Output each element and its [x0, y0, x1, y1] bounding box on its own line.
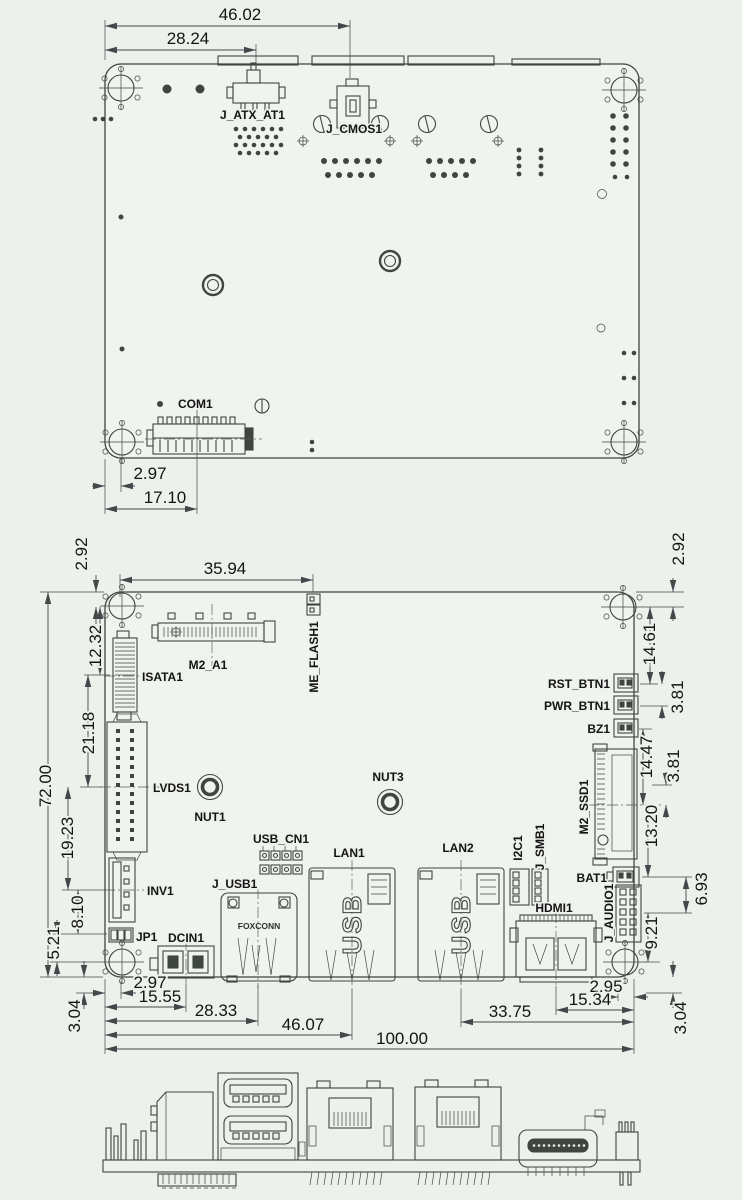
j-audio1-label: J_AUDIO1	[602, 883, 616, 942]
dim-46-02: 46.02	[219, 5, 262, 24]
i2c1-label: I2C1	[511, 835, 525, 861]
side-bottom-com-header	[158, 1174, 236, 1188]
dim-15-34: 15.34	[569, 990, 612, 1009]
hdmi1-label: HDMI1	[535, 901, 573, 915]
dim-28-33: 28.33	[195, 1001, 238, 1020]
lvds1-label: LVDS1	[153, 781, 191, 795]
com1-label: COM1	[178, 397, 213, 411]
dim-3-81-b: 3.81	[664, 749, 683, 782]
dcin1-label: DCIN1	[168, 931, 204, 945]
bat1-label: BAT1	[577, 871, 608, 885]
dim-3-81-a: 3.81	[668, 680, 687, 713]
dim-13-20: 13.20	[642, 805, 661, 848]
dim-19-23: 19.23	[58, 817, 77, 860]
pcb-dimension-drawing: J_ATX_AT1 J_CMOS1 COM1 46.02 28.24 2.97 …	[0, 0, 742, 1200]
dim-left-2-92: 2.92	[72, 537, 91, 570]
lan1-label: LAN1	[333, 846, 365, 860]
dim-33-75: 33.75	[489, 1002, 532, 1021]
foxconn-marking: FOXCONN	[238, 921, 281, 931]
dim-5-21: 5.21	[44, 926, 63, 959]
m2-ssd1-label: M2_SSD1	[577, 779, 591, 834]
bz1-label: BZ1	[587, 722, 610, 736]
isata1-label: ISATA1	[142, 670, 183, 684]
main-view: ISATA1 M2_A1 ME_FLASH1 LVDS1 NUT1 NUT3 I…	[36, 532, 711, 1054]
dim-6-93: 6.93	[692, 872, 711, 905]
lan2-label: LAN2	[442, 841, 474, 855]
dim-100-00: 100.00	[376, 1029, 428, 1048]
dim-14-61: 14.61	[640, 623, 659, 666]
dim-28-24: 28.24	[167, 29, 210, 48]
dim-14-47: 14.47	[637, 736, 656, 779]
side-left-pins	[106, 1124, 146, 1160]
lan1-usb-marking: USB	[337, 894, 367, 955]
side-bottom-pins	[310, 1167, 584, 1185]
side-view	[103, 1073, 640, 1188]
pwr-btn1-label: PWR_BTN1	[544, 699, 610, 713]
drawing-canvas: J_ATX_AT1 J_CMOS1 COM1 46.02 28.24 2.97 …	[0, 0, 742, 1200]
lan2-usb-marking: USB	[446, 894, 476, 955]
side-lan1	[307, 1081, 393, 1160]
dim-left-3-04: 3.04	[65, 999, 84, 1032]
j-smb1-label: J_SMB1	[533, 823, 547, 870]
usb-cn1-label: USB_CN1	[253, 832, 309, 846]
inv1-label: INV1	[147, 884, 174, 898]
side-right-header	[616, 1122, 638, 1185]
side-lan2	[415, 1080, 501, 1160]
j-atx-at1-label: J_ATX_AT1	[220, 108, 285, 122]
dim-17-10: 17.10	[144, 488, 187, 507]
nut1-label: NUT1	[194, 810, 226, 824]
dim-72-00: 72.00	[36, 765, 55, 808]
dim-35-94: 35.94	[204, 559, 247, 578]
side-view-pcb-bar	[103, 1160, 640, 1172]
dim-8-10: 8.10	[68, 895, 87, 928]
side-dc-block	[151, 1092, 213, 1160]
m2-a1-label: M2_A1	[189, 658, 228, 672]
rst-btn1-label: RST_BTN1	[548, 677, 610, 691]
jp1-label: JP1	[136, 930, 158, 944]
dim-right-2-92: 2.92	[669, 532, 688, 565]
j-cmos1-label: J_CMOS1	[326, 122, 382, 136]
dim-2-97-top-view: 2.97	[133, 464, 166, 483]
side-usb-stack	[218, 1073, 305, 1160]
dim-12-32: 12.32	[86, 625, 105, 668]
dim-9-21: 9.21	[642, 916, 661, 949]
nut3-label: NUT3	[372, 770, 404, 784]
j-usb1-label: J_USB1	[212, 877, 258, 891]
side-hdmi	[519, 1110, 605, 1167]
dim-21-18: 21.18	[79, 712, 98, 755]
me-flash1-label: ME_FLASH1	[307, 621, 321, 693]
dim-46-07: 46.07	[282, 1015, 325, 1034]
dim-15-55: 15.55	[139, 987, 182, 1006]
dim-right-3-04: 3.04	[671, 1001, 690, 1034]
top-view: J_ATX_AT1 J_CMOS1 COM1 46.02 28.24 2.97 …	[92, 5, 646, 514]
